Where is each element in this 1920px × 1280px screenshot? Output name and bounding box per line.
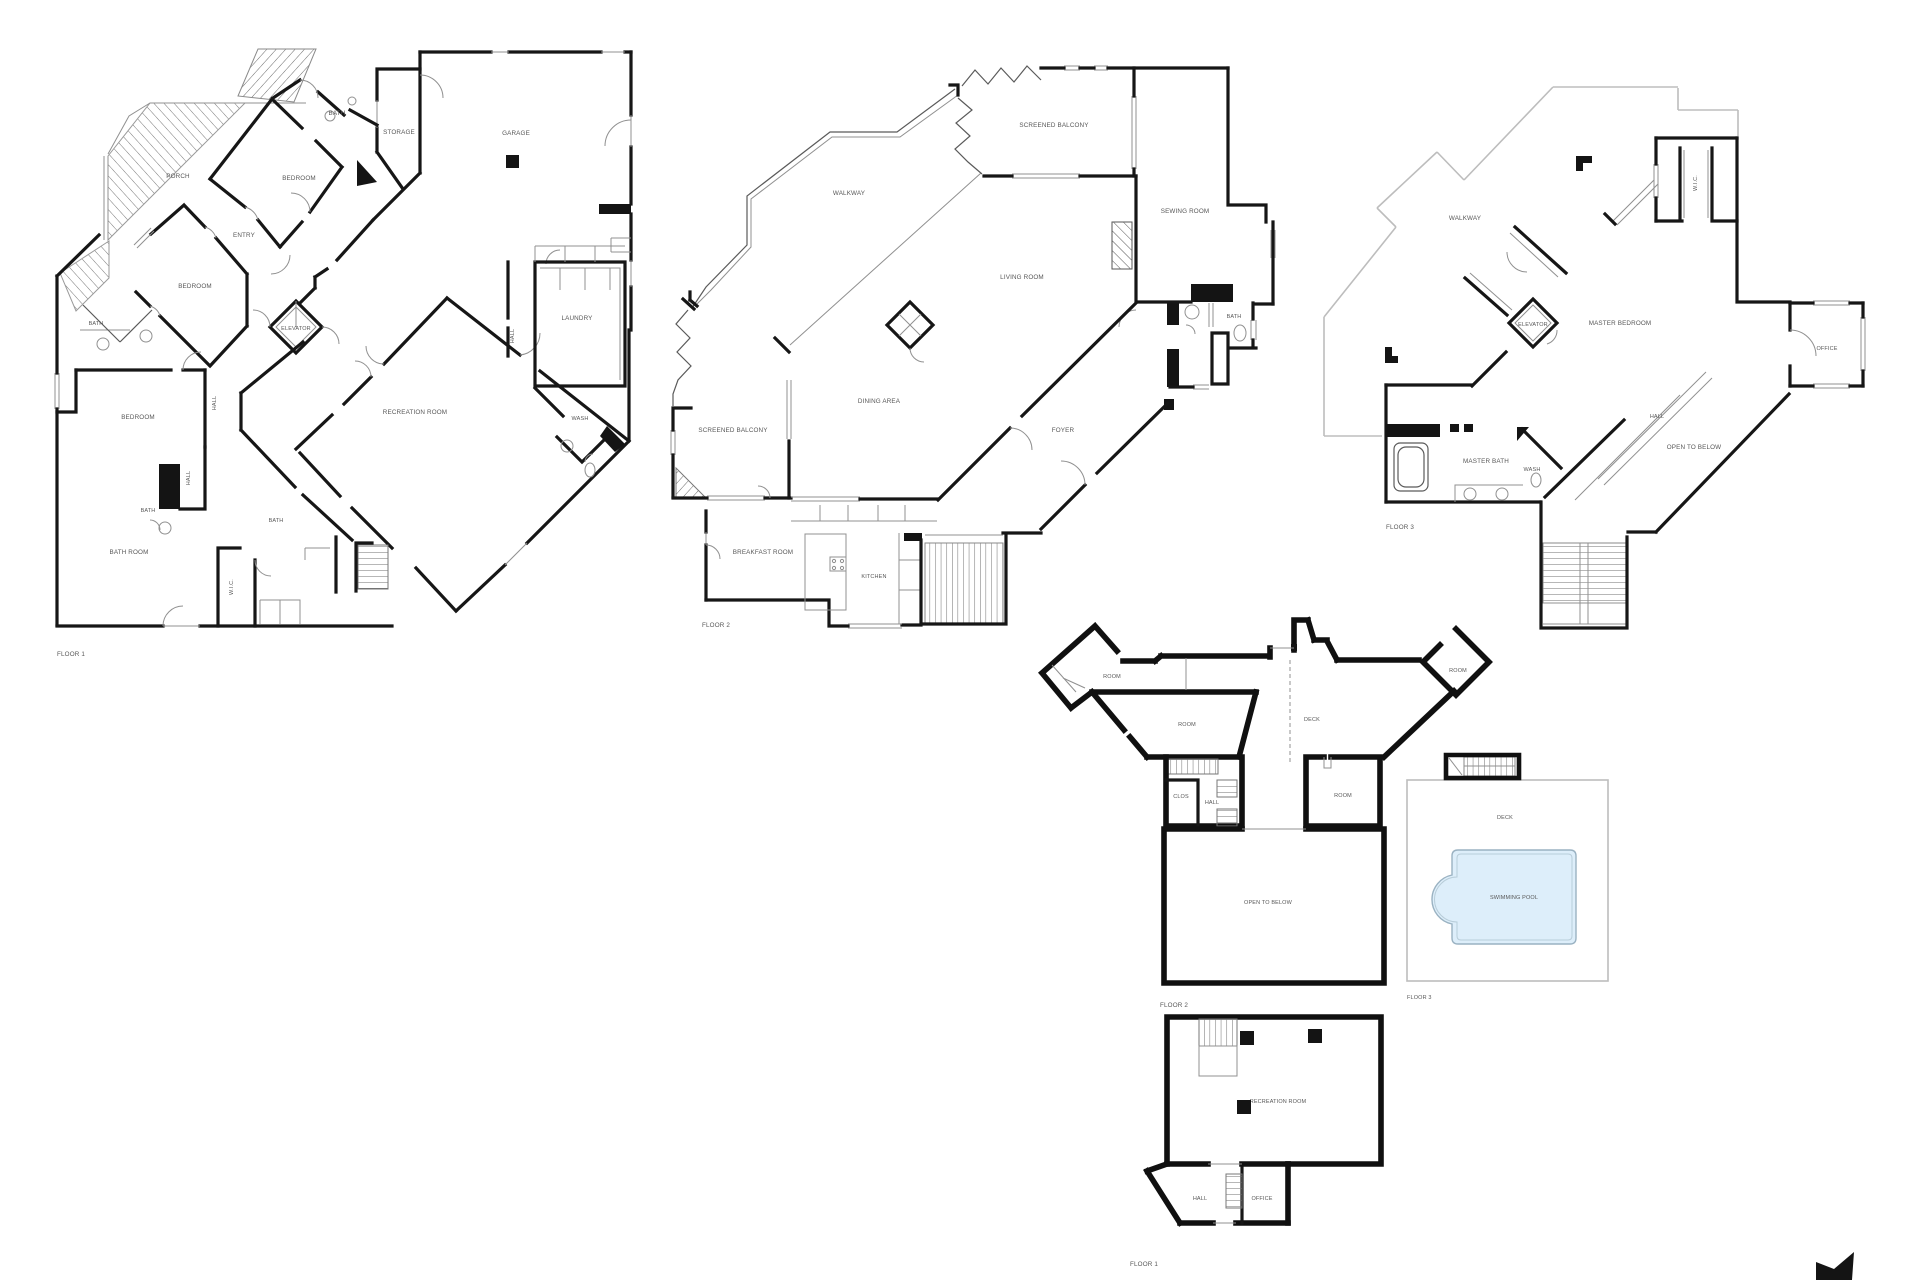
svg-text:ROOM: ROOM bbox=[1449, 668, 1467, 674]
svg-text:DECK: DECK bbox=[1304, 717, 1320, 723]
svg-text:BATH: BATH bbox=[141, 508, 156, 514]
svg-text:BEDROOM: BEDROOM bbox=[282, 175, 316, 182]
svg-text:FLOOR 3: FLOOR 3 bbox=[1407, 995, 1432, 1001]
svg-text:WALKWAY: WALKWAY bbox=[833, 190, 866, 197]
svg-text:WALKWAY: WALKWAY bbox=[1449, 215, 1482, 222]
svg-text:ROOM: ROOM bbox=[1103, 674, 1121, 680]
svg-text:HALL: HALL bbox=[1193, 1196, 1207, 1202]
svg-text:CLOS: CLOS bbox=[1173, 794, 1189, 800]
svg-text:FLOOR 1: FLOOR 1 bbox=[1130, 1261, 1158, 1268]
svg-text:RECREATION ROOM: RECREATION ROOM bbox=[383, 409, 447, 416]
svg-text:W.I.C.: W.I.C. bbox=[1693, 175, 1699, 191]
svg-text:SCREENED BALCONY: SCREENED BALCONY bbox=[698, 427, 768, 434]
svg-text:BREAKFAST ROOM: BREAKFAST ROOM bbox=[733, 549, 793, 556]
svg-text:PORCH: PORCH bbox=[166, 173, 190, 180]
svg-text:DECK: DECK bbox=[1497, 815, 1513, 821]
svg-text:FLOOR 1: FLOOR 1 bbox=[57, 651, 85, 658]
svg-text:ELEVATOR: ELEVATOR bbox=[1518, 322, 1548, 328]
svg-text:BATH ROOM: BATH ROOM bbox=[109, 549, 148, 556]
svg-text:BATH: BATH bbox=[1227, 314, 1242, 320]
svg-text:OFFICE: OFFICE bbox=[1816, 346, 1837, 352]
svg-text:WASH: WASH bbox=[572, 416, 589, 422]
svg-text:BATH: BATH bbox=[269, 518, 284, 524]
svg-text:SCREENED BALCONY: SCREENED BALCONY bbox=[1019, 122, 1089, 129]
svg-text:STORAGE: STORAGE bbox=[383, 129, 415, 136]
svg-text:ELEVATOR: ELEVATOR bbox=[281, 326, 311, 332]
svg-text:MASTER BEDROOM: MASTER BEDROOM bbox=[1589, 320, 1652, 327]
svg-text:LAUNDRY: LAUNDRY bbox=[561, 315, 593, 322]
svg-text:SWIMMING POOL: SWIMMING POOL bbox=[1490, 895, 1538, 901]
svg-text:BATH: BATH bbox=[329, 110, 346, 117]
svg-text:W.I.C.: W.I.C. bbox=[229, 579, 235, 595]
svg-text:BEDROOM: BEDROOM bbox=[178, 283, 212, 290]
svg-text:FLOOR 2: FLOOR 2 bbox=[702, 622, 730, 629]
svg-text:OPEN TO BELOW: OPEN TO BELOW bbox=[1667, 444, 1722, 451]
svg-text:SEWING ROOM: SEWING ROOM bbox=[1161, 208, 1210, 215]
svg-text:KITCHEN: KITCHEN bbox=[861, 574, 886, 580]
svg-text:LIVING ROOM: LIVING ROOM bbox=[1000, 274, 1044, 281]
svg-text:ENTRY: ENTRY bbox=[233, 232, 256, 239]
svg-text:ROOM: ROOM bbox=[1334, 793, 1352, 799]
svg-text:FLOOR 2: FLOOR 2 bbox=[1160, 1002, 1188, 1009]
svg-text:BEDROOM: BEDROOM bbox=[121, 414, 155, 421]
svg-text:HALL: HALL bbox=[212, 396, 218, 410]
svg-text:OPEN TO BELOW: OPEN TO BELOW bbox=[1244, 900, 1293, 906]
svg-text:GARAGE: GARAGE bbox=[502, 130, 530, 137]
svg-text:WASH: WASH bbox=[1524, 467, 1541, 473]
svg-text:MASTER BATH: MASTER BATH bbox=[1463, 458, 1509, 465]
svg-text:HALL: HALL bbox=[510, 329, 516, 343]
svg-text:DINING AREA: DINING AREA bbox=[858, 398, 901, 405]
svg-text:FOYER: FOYER bbox=[1052, 427, 1075, 434]
svg-text:FLOOR 3: FLOOR 3 bbox=[1386, 524, 1414, 531]
svg-text:ROOM: ROOM bbox=[1178, 722, 1196, 728]
svg-text:OFFICE: OFFICE bbox=[1251, 1196, 1272, 1202]
svg-text:RECREATION ROOM: RECREATION ROOM bbox=[1250, 1099, 1307, 1105]
svg-text:HALL: HALL bbox=[1205, 800, 1219, 806]
svg-text:HALL: HALL bbox=[1650, 414, 1664, 420]
svg-text:HALL: HALL bbox=[186, 471, 192, 485]
